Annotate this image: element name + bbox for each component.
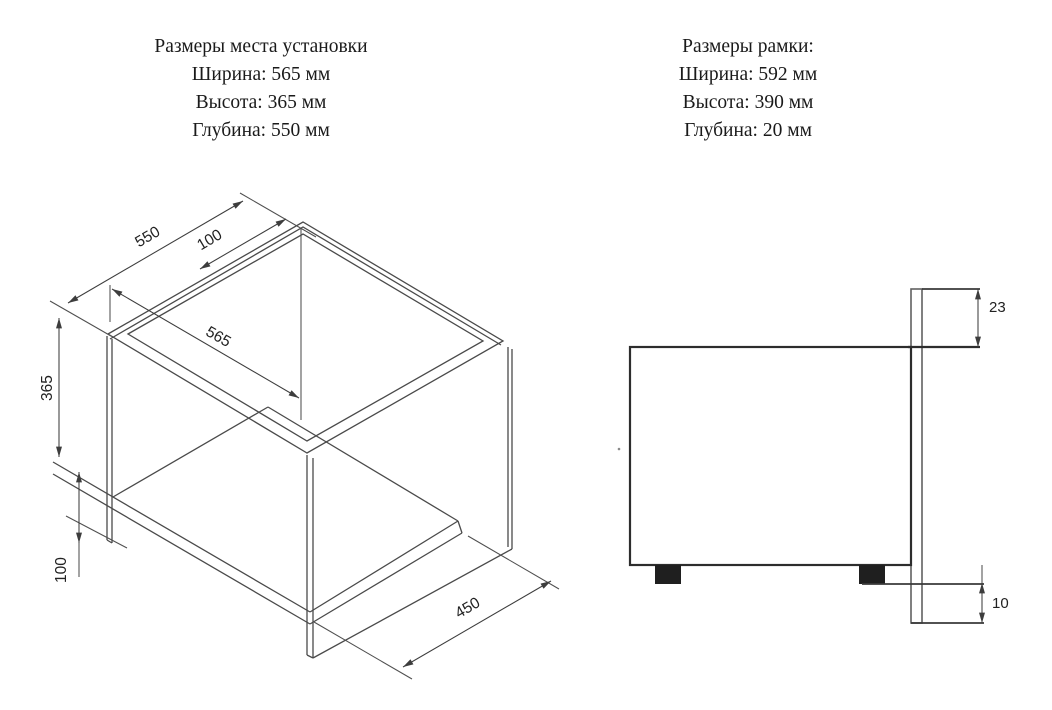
dim-label-depth-550: 550 (132, 223, 163, 251)
dim-label-back-offset-100: 100 (194, 226, 225, 254)
niche-right-wall (307, 347, 512, 658)
ext-line-550-far (240, 193, 316, 237)
niche-left-wall (107, 336, 112, 543)
dim-label-height-365: 365 (39, 375, 56, 401)
dim-line-width-565 (112, 289, 299, 398)
dim-label-shelf-drop-100: 100 (53, 557, 70, 583)
appliance-body (630, 347, 911, 565)
technical-drawing: 550 100 565 365 100 450 23 10 (0, 0, 1052, 710)
appliance-foot-left (655, 565, 681, 584)
ext-line-450-right (468, 536, 559, 589)
niche-top-frame-outer (108, 222, 503, 453)
appliance-foot-right (859, 565, 885, 584)
dim-label-frame-top-23: 23 (989, 299, 1006, 316)
dim-label-frame-bottom-10: 10 (992, 595, 1009, 612)
iso-niche-drawing: 550 100 565 365 100 450 (39, 193, 559, 679)
ext-line-100-bottom (66, 516, 127, 548)
dim-line-depth-550 (68, 201, 243, 303)
frame-bar (911, 289, 922, 623)
dim-label-shelf-depth-450: 450 (452, 594, 483, 622)
dim-line-shelf-depth-450 (403, 581, 551, 667)
niche-top-frame-inner (128, 234, 483, 441)
niche-bottom-shelf (53, 407, 462, 624)
stray-dot (618, 448, 621, 451)
dim-label-width-565: 565 (203, 323, 234, 351)
side-view-drawing: 23 10 (618, 289, 1009, 623)
